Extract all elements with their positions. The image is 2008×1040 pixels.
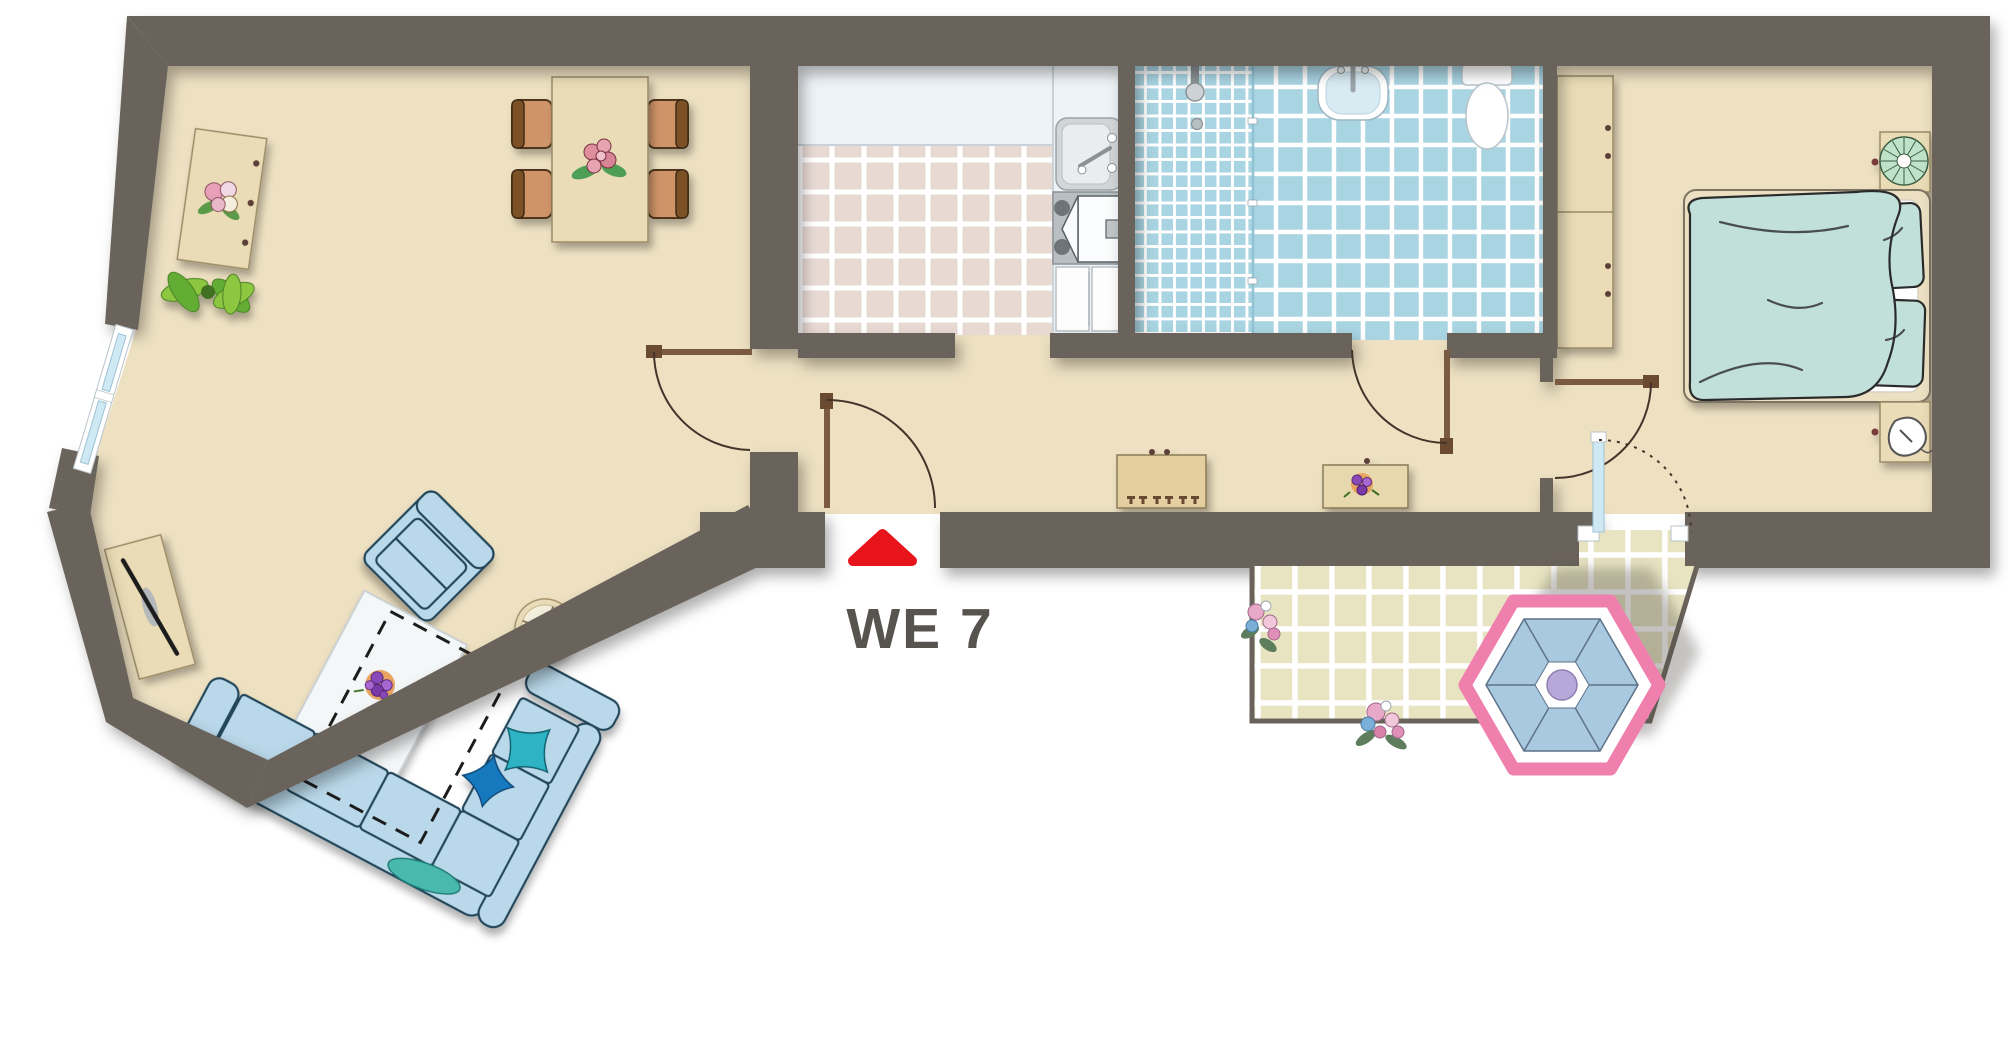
wall-bedroom-west-lower bbox=[1540, 478, 1553, 514]
unit-label: WE 7 bbox=[846, 597, 993, 661]
floor-plan-svg: WE 7 bbox=[0, 0, 2008, 1040]
kitchen-sink-icon bbox=[1056, 118, 1122, 190]
wall-kitchen-west bbox=[750, 66, 798, 349]
red-entrance-triangle-icon bbox=[853, 534, 912, 561]
stove-with-extractor-icon bbox=[1053, 192, 1128, 264]
kitchen-floor-tiles bbox=[798, 145, 1053, 335]
shower-floor-tiles bbox=[1135, 64, 1253, 340]
wardrobe bbox=[1557, 76, 1613, 348]
nightstand-top bbox=[1872, 132, 1931, 192]
shower-drain-icon bbox=[1192, 119, 1203, 130]
double-bed bbox=[1684, 190, 1930, 402]
shoe-cabinet bbox=[1117, 449, 1206, 508]
wall-right bbox=[1932, 66, 1990, 568]
wall-kitchen-bath bbox=[1118, 66, 1135, 338]
dining-chair bbox=[512, 170, 552, 218]
wall-bath-south-left bbox=[1135, 333, 1352, 358]
dining-chair bbox=[512, 100, 552, 148]
wall-kitchen-south-left bbox=[798, 333, 955, 358]
console-table-with-flowers bbox=[1323, 458, 1408, 508]
parasol bbox=[1465, 601, 1659, 769]
dining-table bbox=[552, 77, 648, 242]
kitchen-counter-top-band bbox=[798, 62, 1053, 145]
decorative-plant-icon bbox=[1880, 137, 1928, 185]
parasol-pole bbox=[1547, 670, 1577, 700]
wall-kitchen-west-stub bbox=[750, 452, 798, 514]
wall-bath-bedroom bbox=[1543, 66, 1557, 350]
wall-bottom-bedroom bbox=[1685, 512, 1990, 568]
nightstand-bottom bbox=[1872, 402, 1933, 462]
glass-door-leaf bbox=[1593, 438, 1604, 532]
washbasin-icon bbox=[1318, 64, 1388, 120]
dining-chair bbox=[648, 170, 688, 218]
wall-bedroom-west-upper bbox=[1540, 348, 1553, 382]
dining-chair bbox=[648, 100, 688, 148]
wall-kitchen-south-right bbox=[1050, 333, 1135, 358]
wall-top bbox=[127, 16, 1990, 66]
wall-bottom-hall-right bbox=[940, 512, 1597, 568]
